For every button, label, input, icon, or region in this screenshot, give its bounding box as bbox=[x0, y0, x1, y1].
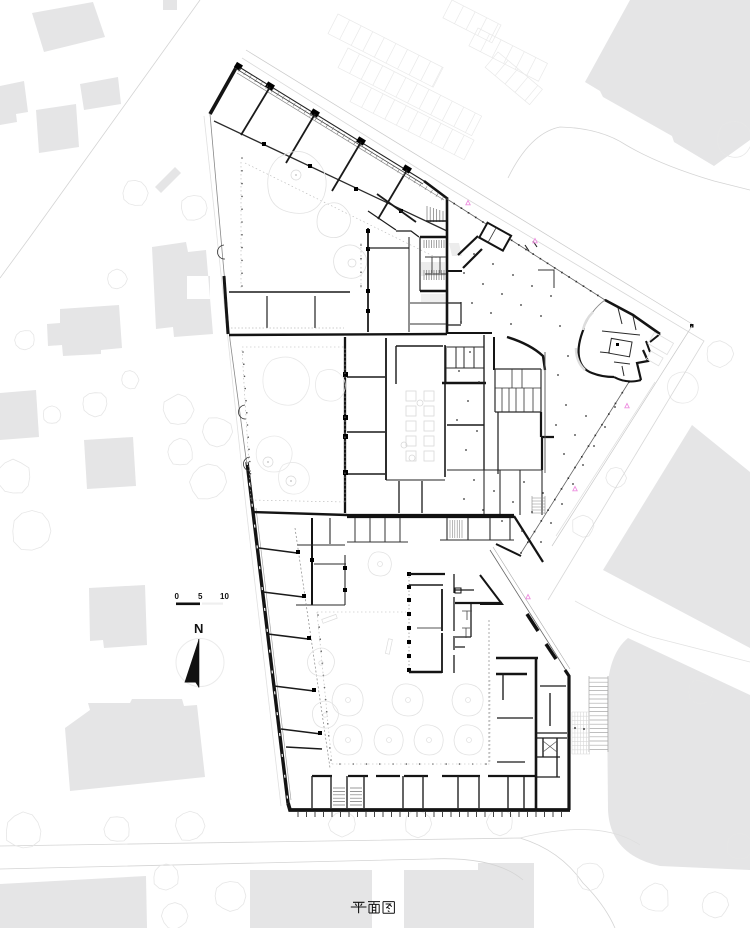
svg-text:0: 0 bbox=[175, 592, 180, 601]
svg-text:5: 5 bbox=[198, 592, 203, 601]
svg-text:N: N bbox=[194, 621, 203, 636]
svg-text:10: 10 bbox=[220, 592, 229, 601]
